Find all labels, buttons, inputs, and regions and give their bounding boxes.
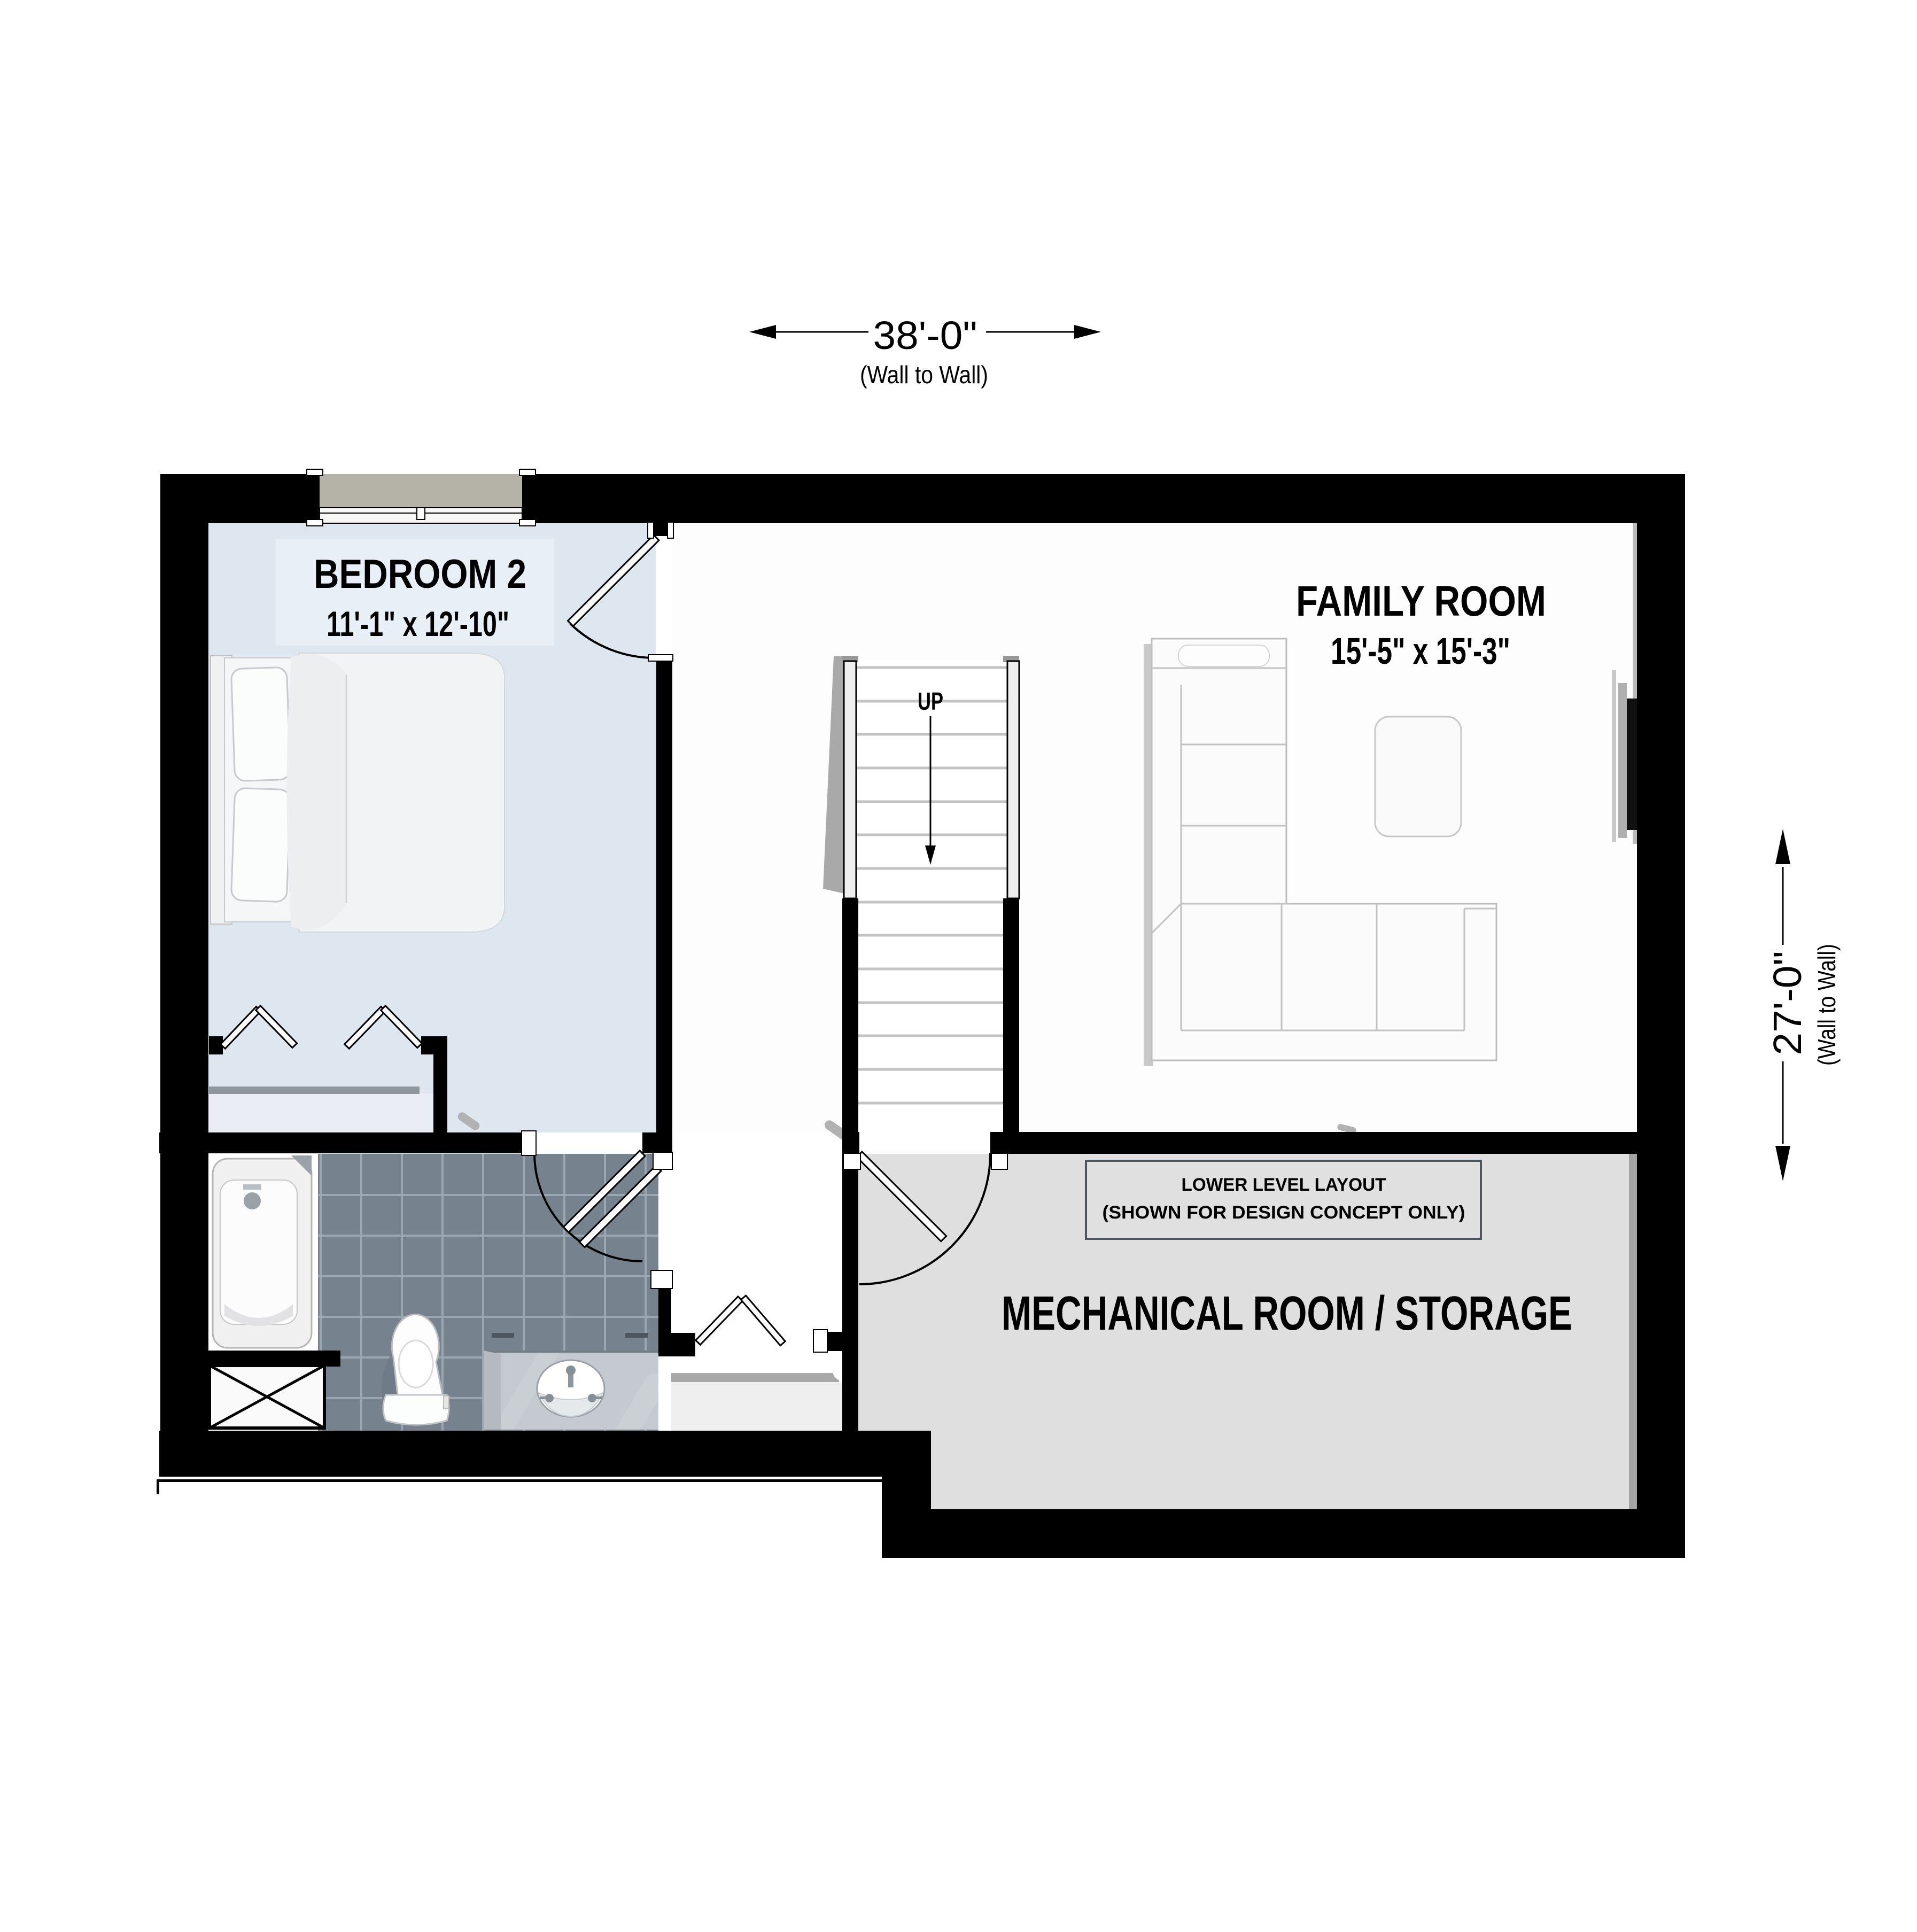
svg-text:BEDROOM 2: BEDROOM 2 <box>314 552 526 597</box>
svg-text:15'-5" x 15'-3": 15'-5" x 15'-3" <box>1331 630 1510 672</box>
svg-text:(Wall to Wall): (Wall to Wall) <box>860 361 988 389</box>
svg-text:FAMILY ROOM: FAMILY ROOM <box>1296 577 1546 625</box>
svg-text:UP: UP <box>918 687 943 715</box>
svg-text:(SHOWN FOR DESIGN CONCEPT ONLY: (SHOWN FOR DESIGN CONCEPT ONLY) <box>1103 1202 1465 1223</box>
svg-text:27'-0": 27'-0" <box>1765 951 1810 1056</box>
svg-text:(Wall to Wall): (Wall to Wall) <box>1813 944 1841 1066</box>
svg-text:38'-0": 38'-0" <box>873 313 977 358</box>
svg-text:LOWER LEVEL LAYOUT: LOWER LEVEL LAYOUT <box>1182 1175 1386 1195</box>
svg-text:11'-1" x 12'-10": 11'-1" x 12'-10" <box>327 604 509 643</box>
svg-text:MECHANICAL ROOM / STORAGE: MECHANICAL ROOM / STORAGE <box>1002 1287 1572 1340</box>
